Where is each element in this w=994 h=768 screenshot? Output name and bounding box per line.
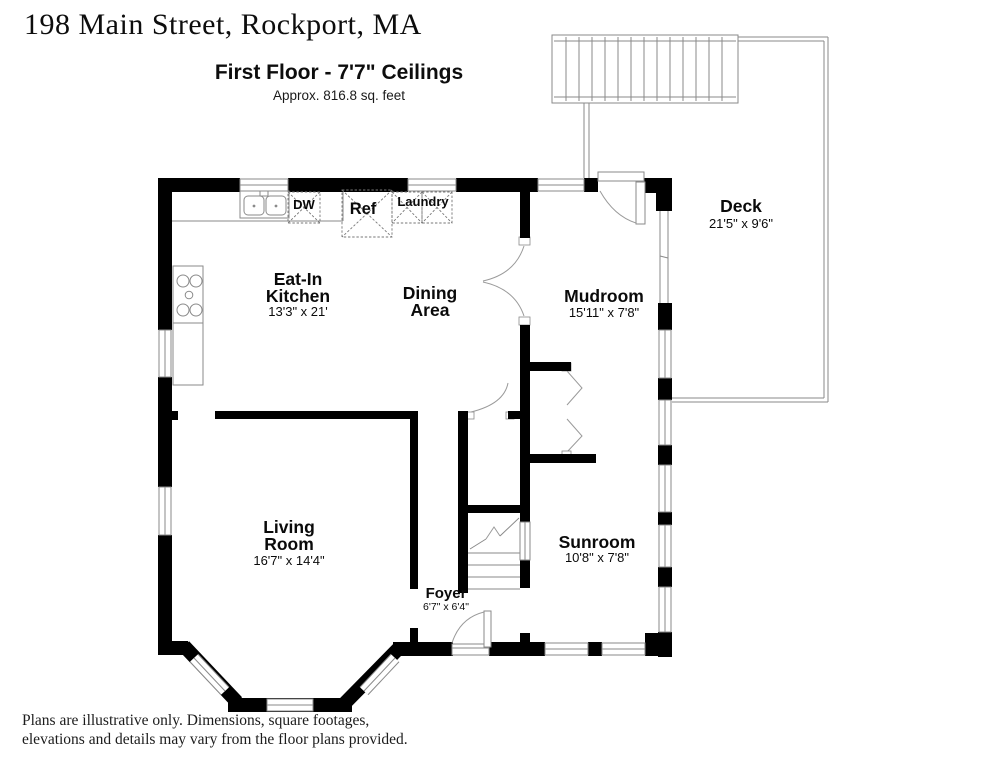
kitchen-counter — [173, 323, 203, 385]
window — [240, 179, 288, 191]
stair-railing — [520, 522, 530, 560]
disclaimer-line-1: Plans are illustrative only. Dimensions,… — [22, 711, 408, 730]
stove — [173, 266, 203, 323]
kitchen-dims: 13'3" x 21' — [268, 304, 327, 319]
floor-plan-drawing: DW Ref Laundry Eat-In Kitchen 13'3" x 21… — [0, 0, 994, 768]
foyer-label: Foyer — [426, 585, 467, 602]
deck-outline — [552, 35, 828, 402]
dining-label-2: Area — [411, 300, 450, 320]
front-door — [452, 611, 491, 655]
window — [659, 330, 671, 378]
window — [159, 487, 171, 535]
kitchen-sink — [240, 191, 289, 218]
window — [159, 330, 171, 377]
sunroom-label: Sunroom — [559, 532, 636, 552]
window — [602, 643, 645, 655]
deck-dims: 21'5" x 9'6" — [709, 216, 773, 231]
laundry-label: Laundry — [397, 194, 449, 209]
sunroom-dims: 10'8" x 7'8" — [565, 550, 629, 565]
window — [659, 587, 671, 632]
closet-door — [466, 383, 514, 419]
living-room-label-2: Room — [264, 534, 314, 554]
window — [538, 179, 584, 191]
window — [659, 400, 671, 445]
window — [659, 525, 671, 567]
kitchen-label-2: Kitchen — [266, 286, 330, 306]
room-labels: DW Ref Laundry Eat-In Kitchen 13'3" x 21… — [253, 194, 773, 613]
stairs-up-arrow — [470, 518, 519, 549]
floor-plan-page: 198 Main Street, Rockport, MA First Floo… — [0, 0, 994, 768]
dining-mudroom-double-door — [483, 237, 530, 325]
mudroom-entry-door — [598, 172, 645, 224]
mudroom-label: Mudroom — [564, 286, 644, 306]
interior-stairs — [468, 518, 520, 589]
living-room-dims: 16'7" x 14'4" — [253, 553, 325, 568]
dishwasher-label: DW — [293, 197, 315, 212]
interior-walls — [215, 192, 596, 645]
deck-label: Deck — [720, 196, 762, 216]
window — [408, 179, 456, 191]
refrigerator-label: Ref — [350, 200, 377, 218]
foyer-dims: 6'7" x 6'4" — [423, 601, 469, 613]
window — [659, 465, 671, 512]
disclaimer: Plans are illustrative only. Dimensions,… — [22, 711, 408, 749]
doors — [452, 172, 645, 655]
window — [545, 643, 588, 655]
mudroom-dims: 15'11" x 7'8" — [569, 305, 640, 320]
disclaimer-line-2: elevations and details may vary from the… — [22, 730, 408, 749]
bifold-doors — [562, 363, 582, 459]
window — [267, 699, 313, 711]
